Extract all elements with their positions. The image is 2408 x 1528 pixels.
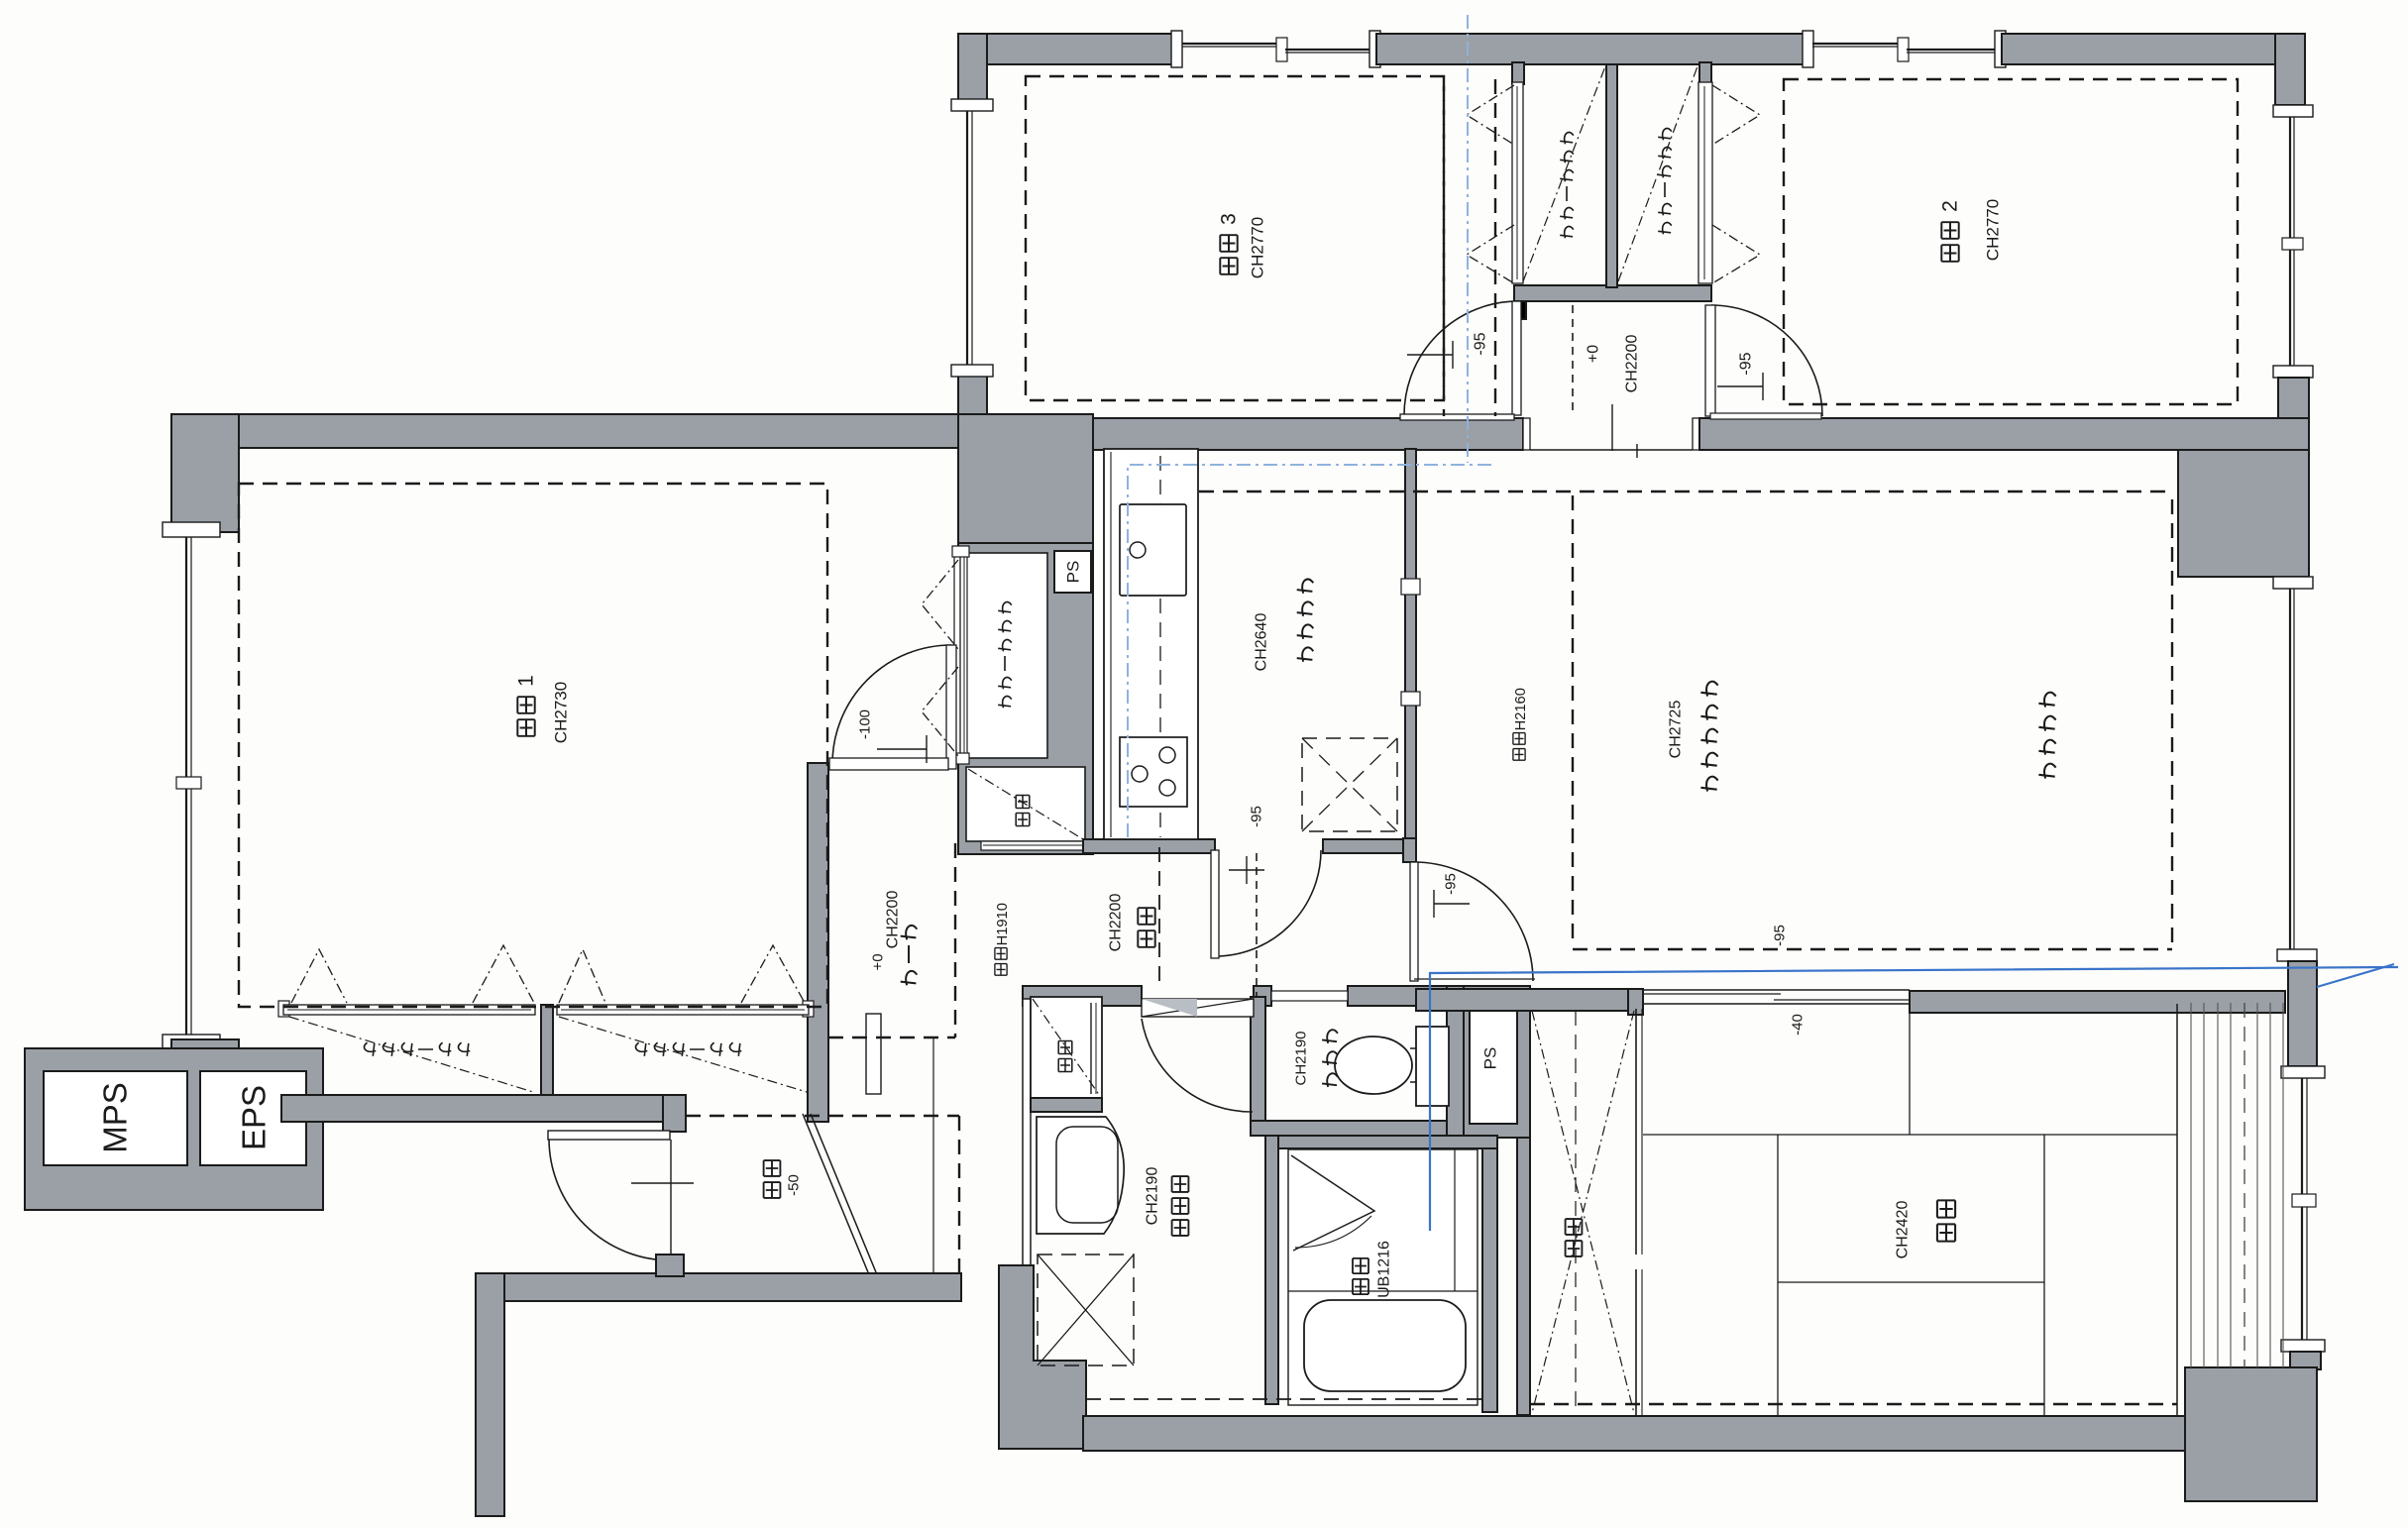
svg-text:-95: -95 [1443,873,1460,895]
svg-text:-50: -50 [786,1174,803,1196]
svg-text:H2160: H2160 [1513,688,1529,730]
svg-text:3: 3 [1218,213,1241,225]
svg-text:2: 2 [1939,200,1962,212]
svg-text:1: 1 [515,675,538,687]
svg-text:CH2200: CH2200 [1624,335,1641,393]
svg-text:CH2730: CH2730 [552,682,571,743]
svg-text:CH2190: CH2190 [1293,1031,1310,1085]
svg-text:-95: -95 [1738,352,1755,375]
svg-text:UB1216: UB1216 [1376,1241,1393,1298]
svg-text:CH2200: CH2200 [1108,894,1125,952]
svg-text:-95: -95 [1249,806,1265,827]
svg-text:MPS: MPS [97,1082,134,1153]
svg-text:CH2420: CH2420 [1895,1201,1912,1259]
svg-text:PS: PS [1064,561,1083,584]
svg-text:CH2200: CH2200 [885,891,902,949]
svg-text:CH2640: CH2640 [1254,613,1270,672]
svg-text:PS: PS [1481,1047,1500,1070]
svg-text:CH2190: CH2190 [1145,1167,1161,1226]
svg-text:+0: +0 [870,953,887,970]
svg-text:CH2770: CH2770 [1249,217,1267,278]
svg-text:CH2770: CH2770 [1984,199,2003,261]
svg-text:+0: +0 [1586,345,1602,363]
svg-text:CH2725: CH2725 [1668,701,1685,759]
svg-text:H1910: H1910 [995,903,1011,945]
svg-text:-100: -100 [857,709,874,739]
svg-text:-40: -40 [1790,1014,1806,1036]
svg-text:-95: -95 [1473,332,1489,355]
svg-text:-95: -95 [1772,925,1789,946]
svg-text:EPS: EPS [236,1085,273,1150]
